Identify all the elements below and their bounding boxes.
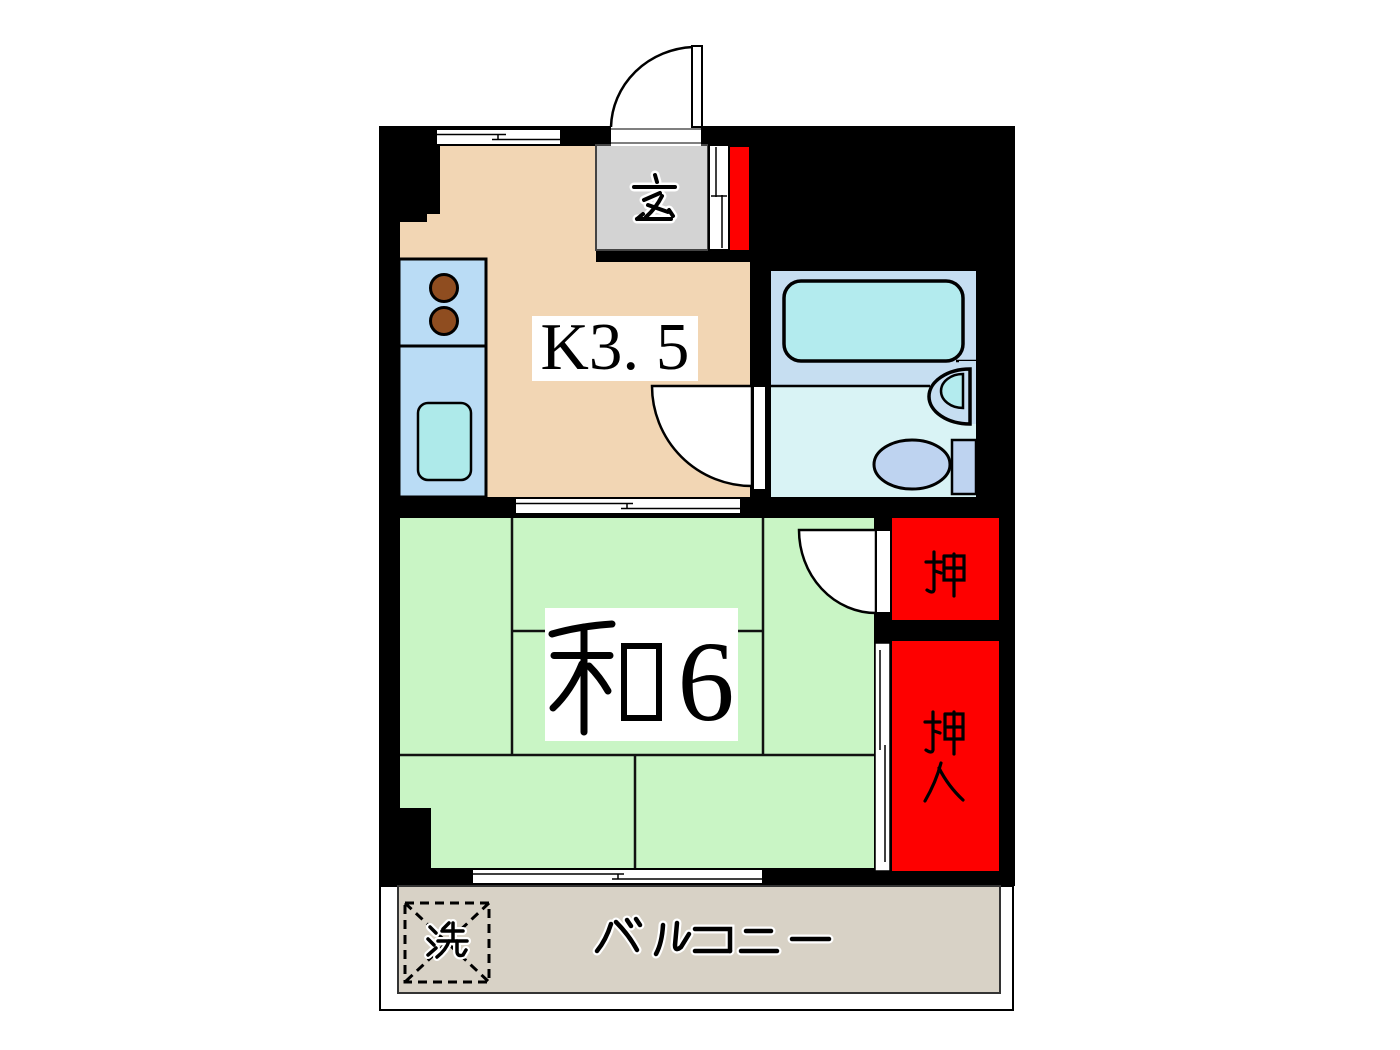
- svg-text:K3. 5: K3. 5: [541, 310, 690, 384]
- svg-text:6: 6: [678, 618, 735, 745]
